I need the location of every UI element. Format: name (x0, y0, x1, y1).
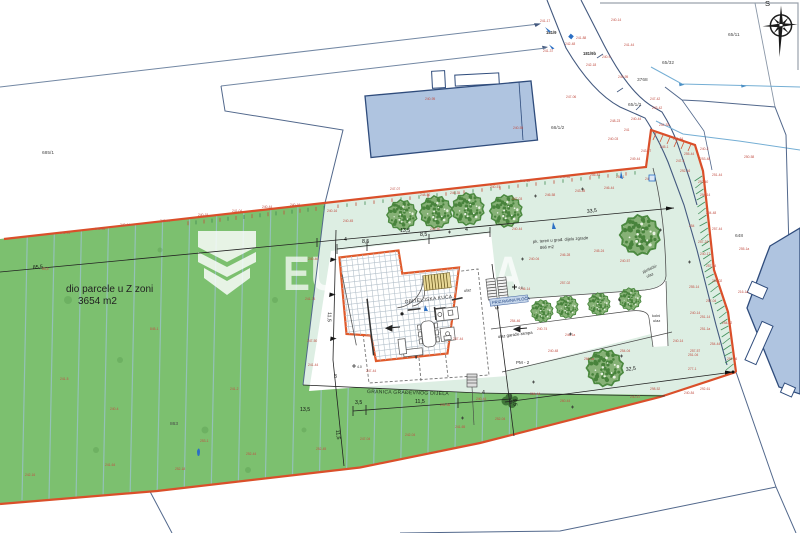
svg-text:251-04: 251-04 (688, 353, 698, 357)
svg-text:255-44: 255-44 (684, 152, 694, 156)
svg-text:254-04: 254-04 (620, 349, 630, 353)
svg-text:240-44: 240-44 (262, 205, 272, 209)
svg-text:PM - 2: PM - 2 (516, 360, 530, 365)
svg-text:240-16: 240-16 (290, 203, 300, 207)
svg-text:254-52: 254-52 (722, 321, 732, 325)
svg-text:241-74: 241-74 (305, 297, 315, 301)
svg-text:241-64: 241-64 (105, 463, 115, 467)
svg-text:240-04: 240-04 (120, 223, 130, 227)
svg-text:240-4: 240-4 (110, 407, 119, 411)
svg-text:248-23: 248-23 (610, 119, 620, 123)
svg-text:247-06: 247-06 (566, 95, 576, 99)
svg-text:247-44: 247-44 (453, 337, 463, 341)
svg-text:240-03: 240-03 (608, 137, 618, 141)
svg-text:240-44: 240-44 (160, 219, 170, 223)
svg-text:244-46: 244-46 (560, 175, 570, 179)
svg-text:240-57: 240-57 (620, 259, 630, 263)
svg-text:246-58: 246-58 (545, 193, 555, 197)
svg-text:240-16: 240-16 (327, 209, 337, 213)
svg-text:240-17: 240-17 (700, 252, 710, 256)
svg-text:3,5: 3,5 (355, 400, 362, 406)
svg-text:216-1a: 216-1a (738, 290, 748, 294)
svg-text:65/11: 65/11 (728, 32, 740, 38)
svg-text:4.0: 4.0 (357, 365, 362, 369)
svg-text:243-28: 243-28 (575, 189, 585, 193)
svg-text:257-14: 257-14 (706, 264, 716, 268)
svg-text:242-16: 242-16 (25, 473, 35, 477)
svg-text:251-1a: 251-1a (700, 327, 710, 331)
svg-text:240-55: 240-55 (513, 126, 523, 130)
svg-text:648: 648 (735, 233, 743, 239)
svg-text:247-07: 247-07 (390, 187, 400, 191)
svg-text:240-04: 240-04 (529, 257, 539, 261)
svg-text:241-04: 241-04 (232, 209, 242, 213)
svg-text:247-03: 247-03 (512, 197, 522, 201)
svg-text:246-14: 246-14 (520, 287, 530, 291)
svg-text:66/1/2: 66/1/2 (551, 125, 565, 131)
svg-text:246-28: 246-28 (560, 253, 570, 257)
svg-text:240-14: 240-14 (611, 18, 621, 22)
svg-text:253-48: 253-48 (700, 157, 710, 161)
svg-text:241-44: 241-44 (308, 363, 318, 367)
svg-text:292-61: 292-61 (700, 387, 710, 391)
svg-text:33,5: 33,5 (587, 208, 598, 215)
svg-text:251-44: 251-44 (712, 173, 722, 177)
svg-text:863: 863 (170, 421, 178, 427)
svg-text:240-48: 240-48 (548, 349, 558, 353)
svg-text:181/9b: 181/9b (583, 51, 596, 56)
svg-text:13,5: 13,5 (300, 407, 310, 413)
svg-text:242-04: 242-04 (405, 433, 415, 437)
svg-text:240-95: 240-95 (425, 97, 435, 101)
svg-text:241-37: 241-37 (543, 49, 553, 53)
svg-text:241-44: 241-44 (60, 231, 70, 235)
svg-text:266-1a: 266-1a (584, 357, 594, 361)
svg-text:240-57: 240-57 (490, 185, 500, 189)
svg-text:241-84: 241-84 (673, 137, 683, 141)
svg-text:241-5: 241-5 (60, 377, 69, 381)
svg-text:257-02: 257-02 (560, 281, 570, 285)
svg-text:249-44: 249-44 (630, 157, 640, 161)
svg-text:241: 241 (624, 128, 630, 132)
svg-text:298-52: 298-52 (650, 387, 660, 391)
svg-text:254: 254 (689, 224, 695, 228)
svg-text:257-24: 257-24 (698, 240, 708, 244)
svg-text:3654 m2: 3654 m2 (78, 296, 117, 307)
svg-text:S: S (765, 0, 770, 8)
svg-text:241-2: 241-2 (230, 387, 239, 391)
svg-text:8,5: 8,5 (420, 232, 427, 238)
svg-text:240-14: 240-14 (673, 339, 683, 343)
svg-text:264-44: 264-44 (530, 392, 540, 396)
svg-text:249-95: 249-95 (618, 75, 628, 79)
svg-text:240-84: 240-84 (684, 391, 694, 395)
svg-text:ulaz: ulaz (653, 318, 660, 323)
svg-text:247-42: 247-42 (650, 97, 660, 101)
svg-text:11,5: 11,5 (415, 399, 425, 405)
svg-text:240-45: 240-45 (343, 219, 353, 223)
svg-text:85,5: 85,5 (42, 267, 49, 271)
svg-text:245-24: 245-24 (594, 249, 604, 253)
svg-text:3: 3 (334, 374, 337, 380)
svg-text:277-1: 277-1 (688, 367, 697, 371)
svg-text:65/32: 65/32 (662, 60, 674, 66)
svg-text:294-48: 294-48 (706, 211, 716, 215)
svg-text:252-44: 252-44 (246, 452, 256, 456)
svg-text:292-16: 292-16 (680, 169, 690, 173)
svg-text:257-04: 257-04 (706, 299, 716, 303)
svg-text:243-42: 243-42 (652, 106, 662, 110)
svg-text:255-1a: 255-1a (739, 247, 749, 251)
svg-text:240-14: 240-14 (690, 311, 700, 315)
svg-text:254-46: 254-46 (510, 319, 520, 323)
svg-text:246-35: 246-35 (450, 191, 460, 195)
svg-text:11,5: 11,5 (326, 312, 332, 322)
svg-text:247-4: 247-4 (676, 159, 685, 163)
svg-text:240-9: 240-9 (602, 55, 611, 59)
svg-text:241-88: 241-88 (576, 36, 586, 40)
svg-text:251-16: 251-16 (727, 357, 737, 361)
svg-text:255-02: 255-02 (712, 279, 722, 283)
svg-text:252-04: 252-04 (495, 417, 505, 421)
svg-text:257-44: 257-44 (712, 227, 722, 231)
svg-text:247-04: 247-04 (360, 437, 370, 441)
svg-text:845-1: 845-1 (150, 327, 159, 331)
svg-text:4: 4 (344, 237, 347, 243)
svg-text:251-14: 251-14 (700, 315, 710, 319)
svg-text:252-18: 252-18 (175, 467, 185, 471)
svg-text:240-50: 240-50 (520, 179, 530, 183)
svg-text:9,5: 9,5 (511, 399, 518, 407)
svg-text:254-52: 254-52 (659, 123, 669, 127)
svg-text:241-44: 241-44 (624, 43, 634, 47)
svg-text:240-2: 240-2 (700, 147, 709, 151)
svg-text:240-46: 240-46 (308, 257, 318, 261)
svg-text:246-50: 246-50 (430, 227, 440, 231)
svg-text:240-18: 240-18 (198, 213, 208, 217)
svg-text:247-50: 247-50 (307, 339, 317, 343)
svg-text:253-1: 253-1 (200, 439, 209, 443)
svg-text:240-44: 240-44 (512, 227, 522, 231)
svg-text:252-45: 252-45 (316, 447, 326, 451)
svg-text:256-44: 256-44 (590, 173, 600, 177)
svg-text:255-14: 255-14 (689, 285, 699, 289)
svg-text:248-50: 248-50 (420, 193, 430, 197)
svg-text:247-44: 247-44 (366, 369, 376, 373)
svg-text:240-46: 240-46 (95, 227, 105, 231)
svg-text:65/1/2: 65/1/2 (628, 102, 642, 108)
svg-text:245-1: 245-1 (660, 145, 669, 149)
svg-text:866 m2: 866 m2 (540, 244, 555, 250)
svg-text:240-44: 240-44 (631, 117, 641, 121)
svg-text:dio parcele u Z zoni: dio parcele u Z zoni (66, 284, 153, 295)
svg-text:240-74: 240-74 (537, 327, 547, 331)
svg-text:242-48: 242-48 (565, 42, 575, 46)
svg-text:685/1: 685/1 (42, 150, 54, 156)
svg-text:241-17: 241-17 (540, 19, 550, 23)
svg-text:240-57: 240-57 (630, 395, 640, 399)
svg-text:13,5: 13,5 (400, 228, 410, 234)
svg-text:250-58: 250-58 (744, 155, 754, 159)
svg-text:260-44: 260-44 (560, 399, 570, 403)
svg-text:254-44: 254-44 (710, 342, 720, 346)
svg-text:ulaz: ulaz (464, 287, 472, 293)
svg-text:240-44: 240-44 (476, 397, 486, 401)
svg-text:11,5: 11,5 (334, 430, 341, 440)
svg-text:246-44: 246-44 (604, 186, 614, 190)
svg-text:3768: 3768 (637, 77, 648, 83)
svg-text:241-56: 241-56 (440, 403, 450, 407)
svg-text:4: 4 (465, 227, 468, 233)
svg-text:242-18: 242-18 (586, 63, 596, 67)
svg-text:243-17: 243-17 (641, 149, 651, 153)
svg-text:292-40: 292-40 (698, 180, 708, 184)
svg-text:32,5: 32,5 (626, 366, 637, 373)
svg-text:294-14: 294-14 (700, 193, 710, 197)
svg-text:8,5: 8,5 (362, 239, 369, 245)
svg-text:241-65: 241-65 (455, 425, 465, 429)
